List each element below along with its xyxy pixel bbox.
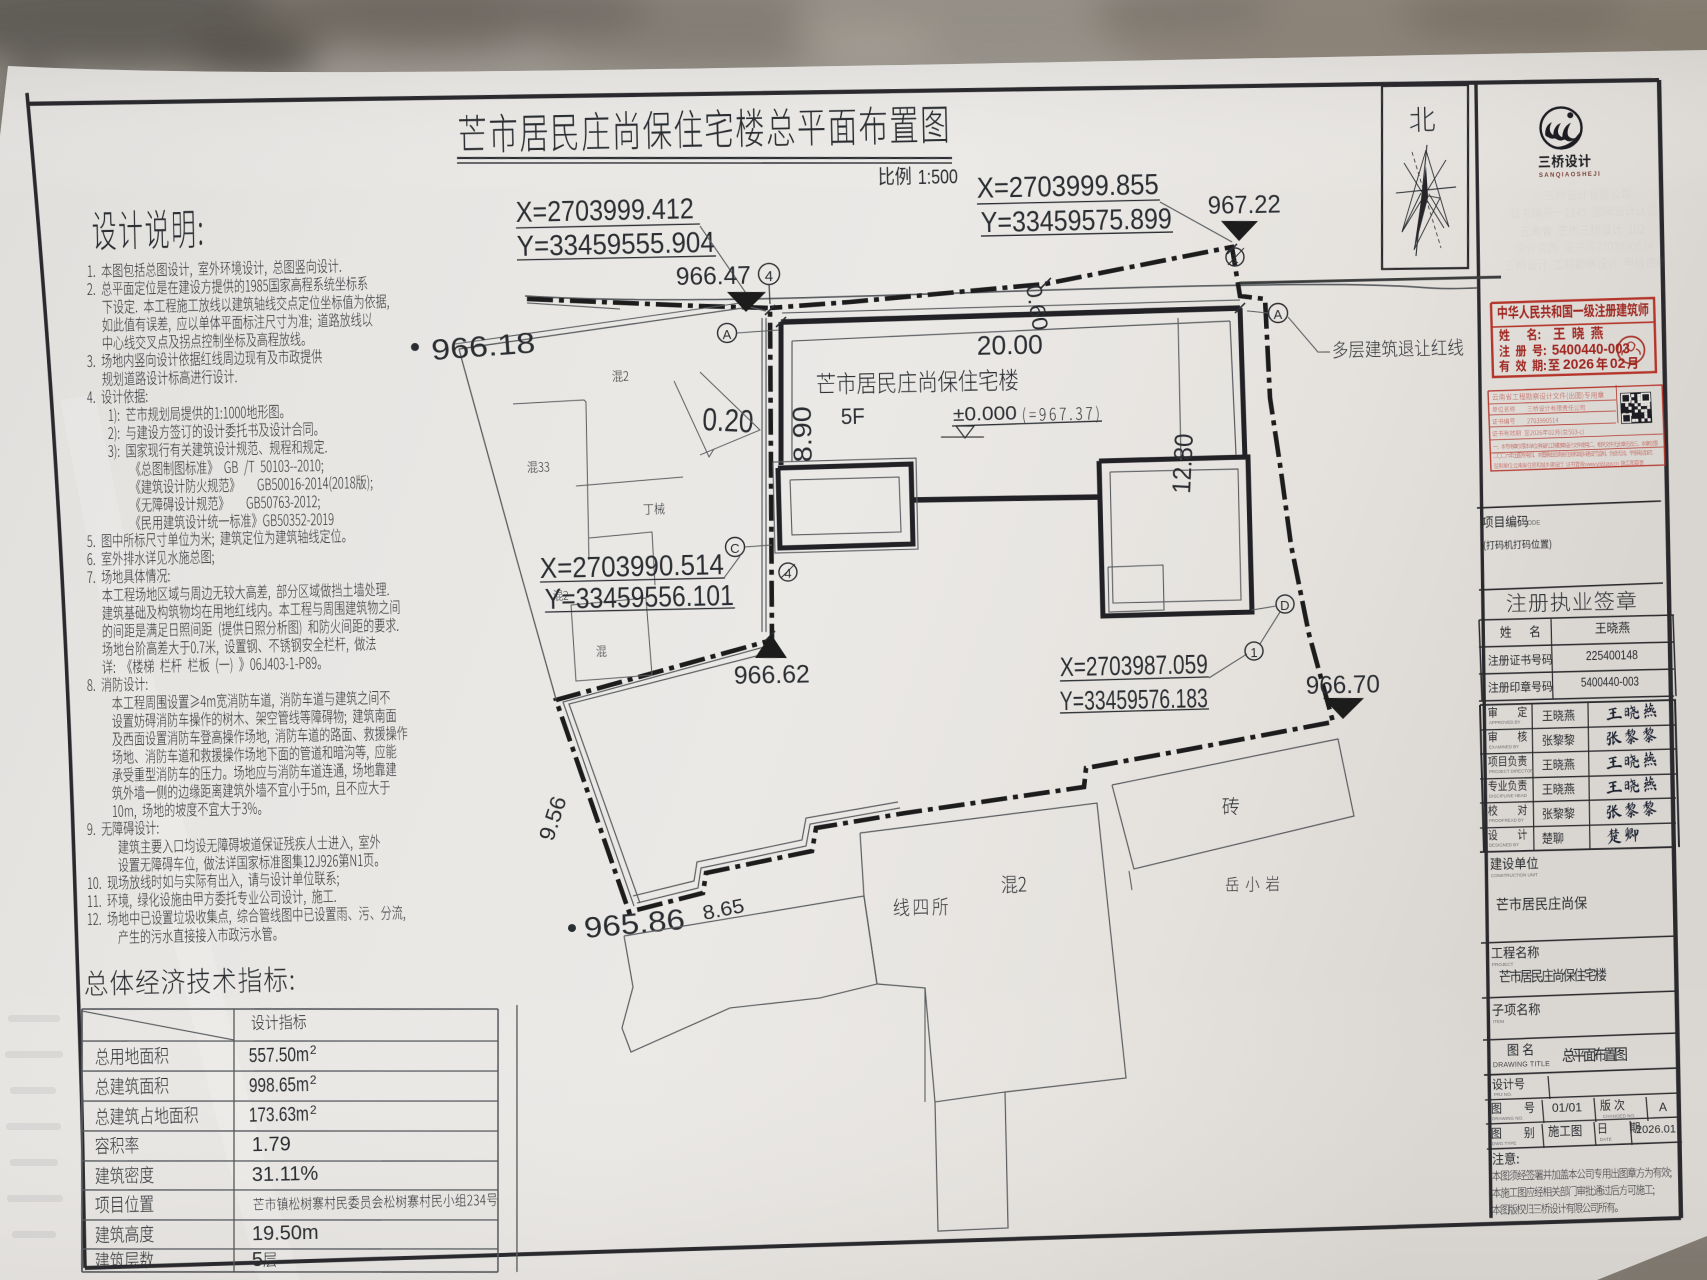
svg-text:D: D	[1280, 598, 1290, 613]
svg-text:225400148: 225400148	[1586, 647, 1638, 663]
svg-text:X=2703999.412: X=2703999.412	[515, 193, 694, 229]
svg-text:1:500: 1:500	[918, 166, 958, 189]
svg-text:DWG TYPE: DWG TYPE	[1492, 1141, 1517, 1147]
svg-text:A: A	[722, 327, 731, 342]
svg-text:8.90: 8.90	[787, 406, 818, 463]
svg-text:PRJ NO.: PRJ NO.	[1494, 1092, 1512, 1097]
svg-text:5: 5	[252, 1249, 264, 1271]
svg-text:CHANGED NO.: CHANGED NO.	[1603, 1113, 1636, 1119]
svg-text:1: 1	[1231, 251, 1239, 266]
svg-text:5400440-003: 5400440-003	[1581, 674, 1639, 690]
svg-text:4: 4	[765, 268, 774, 285]
svg-text:CODE: CODE	[1523, 521, 1540, 527]
svg-text:19.50m: 19.50m	[252, 1222, 319, 1245]
svg-text:DESIGNED BY: DESIGNED BY	[1489, 842, 1519, 848]
svg-text:APPROVED BY: APPROVED BY	[1489, 719, 1521, 725]
svg-text:C: C	[730, 541, 740, 556]
svg-text:02: 02	[1610, 355, 1626, 371]
svg-text:967.22: 967.22	[1207, 190, 1281, 220]
svg-text:0.20: 0.20	[702, 401, 755, 439]
svg-text:A: A	[1273, 307, 1282, 322]
svg-text:PROJECT: PROJECT	[1492, 962, 1514, 967]
svg-text:5F: 5F	[841, 404, 866, 429]
svg-text:998.65m: 998.65m	[249, 1074, 309, 1097]
svg-text:966.62: 966.62	[734, 660, 811, 690]
svg-text:2: 2	[310, 1073, 317, 1087]
svg-text:±0.000: ±0.000	[953, 404, 1017, 426]
svg-text:PROJECT DIRECTOR: PROJECT DIRECTOR	[1489, 768, 1534, 774]
svg-text:X=2703999.855: X=2703999.855	[976, 169, 1159, 205]
svg-text:2026: 2026	[1563, 355, 1595, 372]
svg-text:ITEM: ITEM	[1493, 1019, 1504, 1024]
svg-text:DISCIPLINE HEAD: DISCIPLINE HEAD	[1489, 793, 1527, 799]
svg-text:2: 2	[310, 1043, 317, 1057]
svg-text:DATE: DATE	[1600, 1137, 1612, 1142]
svg-text:966.70: 966.70	[1306, 670, 1381, 700]
svg-text:DRAWING TITLE: DRAWING TITLE	[1493, 1061, 1550, 1069]
svg-text:1: 1	[1250, 645, 1258, 660]
svg-text:PROOFREAD BY: PROOFREAD BY	[1489, 817, 1524, 823]
svg-text:173.63m: 173.63m	[249, 1104, 309, 1127]
svg-text:1.79: 1.79	[252, 1133, 291, 1156]
svg-text:DRAWING NO.: DRAWING NO.	[1492, 1115, 1524, 1121]
svg-text:01/01: 01/01	[1552, 1100, 1583, 1115]
svg-text:2: 2	[310, 1103, 317, 1117]
svg-text:31.11%: 31.11%	[252, 1163, 319, 1186]
svg-text:2026.01: 2026.01	[1636, 1123, 1676, 1136]
svg-text:CONSTRUCTION UNIT: CONSTRUCTION UNIT	[1491, 872, 1538, 878]
svg-text:12.80: 12.80	[1166, 433, 1199, 494]
svg-text:557.50m: 557.50m	[249, 1044, 309, 1067]
svg-text:966.47: 966.47	[676, 261, 752, 291]
svg-text:20.00: 20.00	[976, 330, 1043, 361]
svg-text:A: A	[1659, 1100, 1667, 1114]
svg-text:EXAMINED BY: EXAMINED BY	[1489, 744, 1519, 750]
